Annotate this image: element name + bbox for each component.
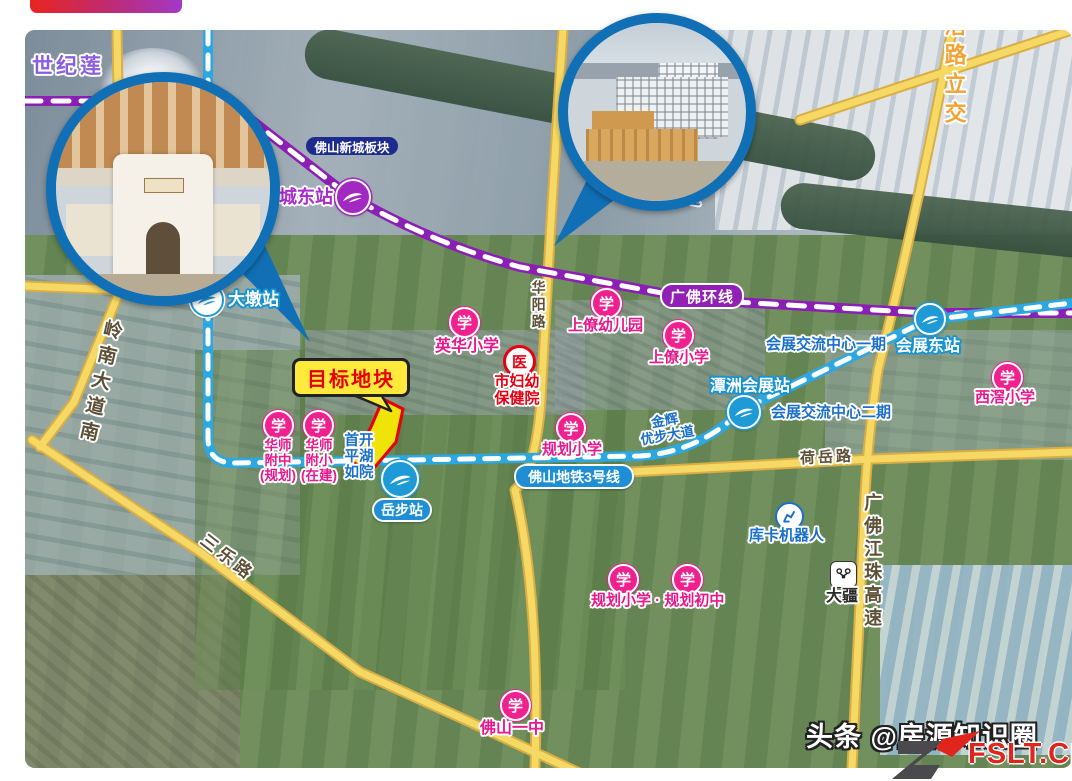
label-interchange: 滘路立交 <box>941 30 966 130</box>
metro-swoosh-icon <box>341 185 364 208</box>
target-plot-callout: 目标地块 <box>292 358 410 397</box>
article-image: 世纪莲 佛山新城板块 滘路立交 潭洲水道 广佛环线 佛山地铁3号线 岭南大道南 … <box>0 0 1072 781</box>
school-label-foshan-no1: 佛山一中 <box>480 720 544 738</box>
inset1-ground <box>56 274 270 296</box>
label-road-heyue: 荷岳路 <box>800 449 855 469</box>
dji-drone-icon <box>830 561 857 588</box>
fslt-site-text: FSLT.CN <box>968 738 1072 770</box>
school-label-planned-primary: 规划小学 <box>542 442 602 459</box>
watermark-platform: 头条 <box>806 722 862 752</box>
hospital-label-line: 保健院 <box>491 391 543 408</box>
inset2-ground <box>568 161 746 201</box>
inset1-gate-plaque <box>144 178 184 193</box>
drone-icon <box>835 566 852 583</box>
school-label-yinghua: 英华小学 <box>435 338 499 356</box>
station-icon-tanzhou-expo <box>727 395 761 429</box>
school-icon-foshan-no1: 学 <box>500 690 531 721</box>
label-road-huayang: 华阳路 <box>530 280 546 331</box>
brand-bar <box>30 0 182 13</box>
robot-arm-icon <box>782 509 797 524</box>
project-label-line: 平湖 <box>337 449 381 465</box>
station-icon-yuebu <box>381 460 419 498</box>
label-newtown-block: 佛山新城板块 <box>306 137 398 155</box>
label-century-lotus: 世纪莲 <box>32 55 104 79</box>
project-label-expo-phase2: 会展交流中心二期 <box>771 405 891 422</box>
hospital-label: 市妇幼 保健院 <box>491 374 543 408</box>
project-label-kuka: 库卡机器人 <box>749 528 824 545</box>
inset-photo-hospital-aerial <box>558 13 756 211</box>
label-metro-line3: 佛山地铁3号线 <box>514 464 634 489</box>
inset-photo-school-gate <box>46 72 280 306</box>
school-icon-shangliao-kg: 学 <box>591 288 622 319</box>
label-loop-line: 广佛环线 <box>660 283 744 309</box>
station-icon-expo-east <box>914 303 946 335</box>
school-label-xijiao: 西滘小学 <box>975 390 1035 407</box>
school-label-shangliao-kg: 上僚幼儿园 <box>568 318 643 335</box>
station-label-tanzhou-expo: 潭洲会展站 <box>710 378 790 396</box>
school-label-shangliao-primary: 上僚小学 <box>649 350 709 367</box>
metro-swoosh-icon <box>920 309 940 329</box>
project-label-dji: 大疆 <box>826 588 858 606</box>
label-road-gfjz: 广佛江珠高速 <box>862 493 882 631</box>
project-label-expo-phase1: 会展交流中心一期 <box>766 337 886 354</box>
school-label-planned-combo: 规划小学 · 规划初中 <box>591 593 724 610</box>
school-icon-planned-combo-2: 学 <box>672 564 703 595</box>
school-icon-planned-combo-1: 学 <box>608 564 639 595</box>
station-icon-xinchengdong <box>335 179 371 215</box>
school-icon-yinghua: 学 <box>449 307 480 338</box>
station-label-yuebu: 岳步站 <box>372 498 432 522</box>
metro-swoosh-icon <box>733 401 755 423</box>
project-label-line: 如院 <box>337 465 381 481</box>
hospital-label-line: 市妇幼 <box>491 374 543 391</box>
school-icon-hsfz: 学 <box>263 410 294 441</box>
school-icon-hsfx: 学 <box>303 410 334 441</box>
school-icon-shangliao-primary: 学 <box>663 320 694 351</box>
metro-swoosh-icon <box>388 467 412 491</box>
school-icon-planned-primary: 学 <box>556 413 586 443</box>
project-label-shoukai: 首开 平湖 如院 <box>337 433 381 482</box>
inset2-podium <box>586 129 698 163</box>
project-label-line: 首开 <box>337 433 381 449</box>
station-label-expo-east: 会展东站 <box>896 338 960 356</box>
